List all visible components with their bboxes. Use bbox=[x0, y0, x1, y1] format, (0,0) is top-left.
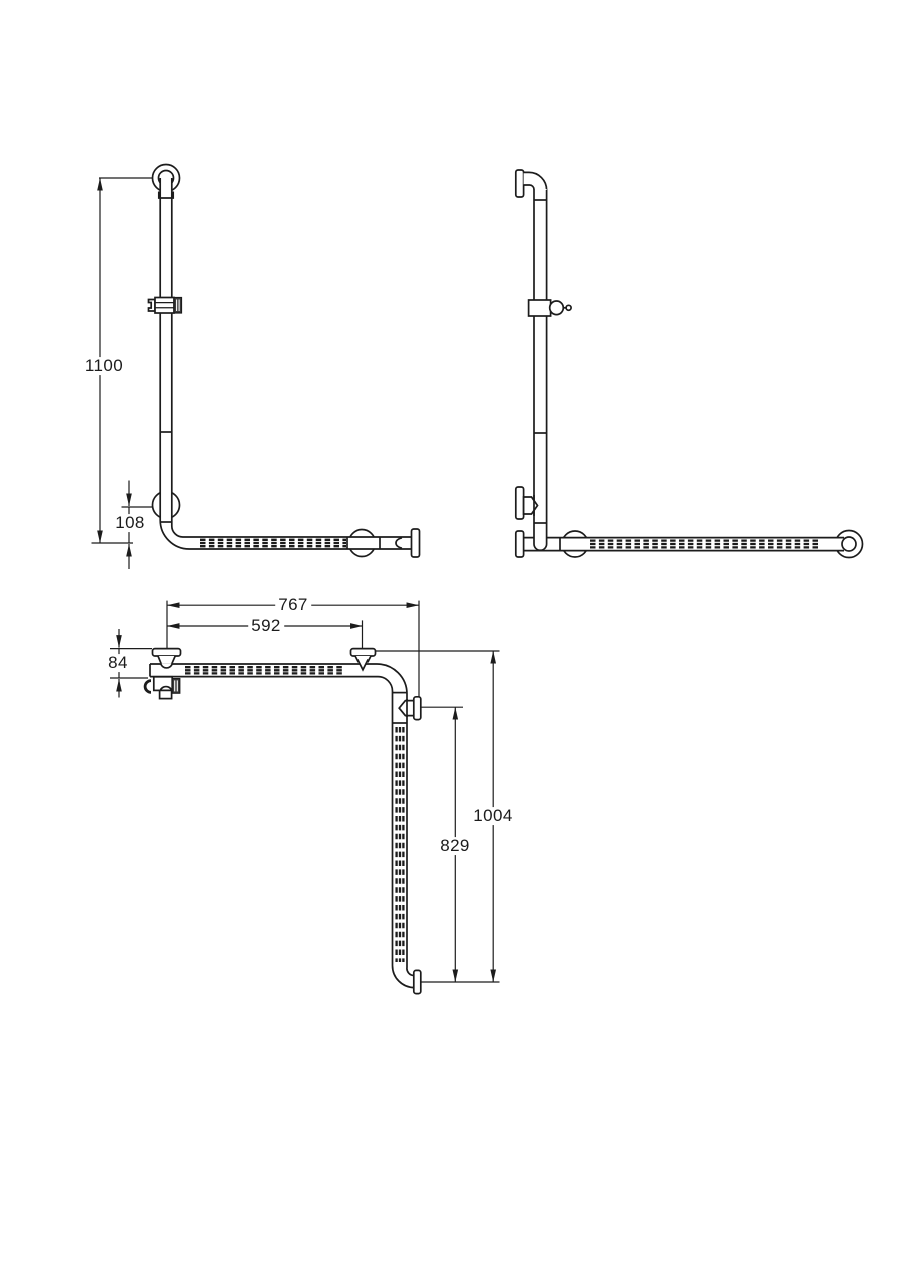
drawing-canvas bbox=[0, 0, 908, 1285]
dim-label-767: 767 bbox=[275, 596, 311, 614]
slider-knurl-knob bbox=[174, 298, 182, 314]
slider-collar-side bbox=[529, 300, 551, 316]
wall-plate bbox=[412, 529, 420, 557]
plan-bottom-plate bbox=[414, 970, 421, 993]
plan-rail-inner bbox=[150, 677, 415, 988]
slider-body bbox=[155, 298, 174, 314]
dim-label-108: 108 bbox=[112, 514, 148, 532]
dim-label-1004: 1004 bbox=[470, 807, 515, 825]
side-elevation-view bbox=[516, 170, 863, 558]
mid-wall-plate bbox=[516, 487, 524, 519]
plan-rail-outer bbox=[150, 664, 414, 975]
technical-drawing-page: 1100 108 767 592 84 829 1004 bbox=[0, 0, 908, 1285]
dim-label-592: 592 bbox=[248, 617, 284, 635]
slider-knob-side bbox=[550, 301, 564, 315]
plan-flange-plate-2 bbox=[351, 649, 376, 656]
front-elevation-view bbox=[92, 165, 420, 570]
slider-hook bbox=[149, 300, 156, 312]
top-wall-plate bbox=[516, 170, 524, 197]
plan-slider-hook bbox=[145, 681, 151, 693]
plan-side-plate bbox=[414, 697, 421, 720]
dim-label-1100: 1100 bbox=[82, 357, 126, 375]
dim-label-84: 84 bbox=[105, 654, 131, 672]
top-plan-view bbox=[110, 601, 500, 994]
dim-label-829: 829 bbox=[437, 837, 473, 855]
plan-slider-knob bbox=[172, 679, 180, 694]
plan-flange-plate-1 bbox=[153, 649, 181, 656]
bottom-wall-plate bbox=[516, 531, 524, 557]
